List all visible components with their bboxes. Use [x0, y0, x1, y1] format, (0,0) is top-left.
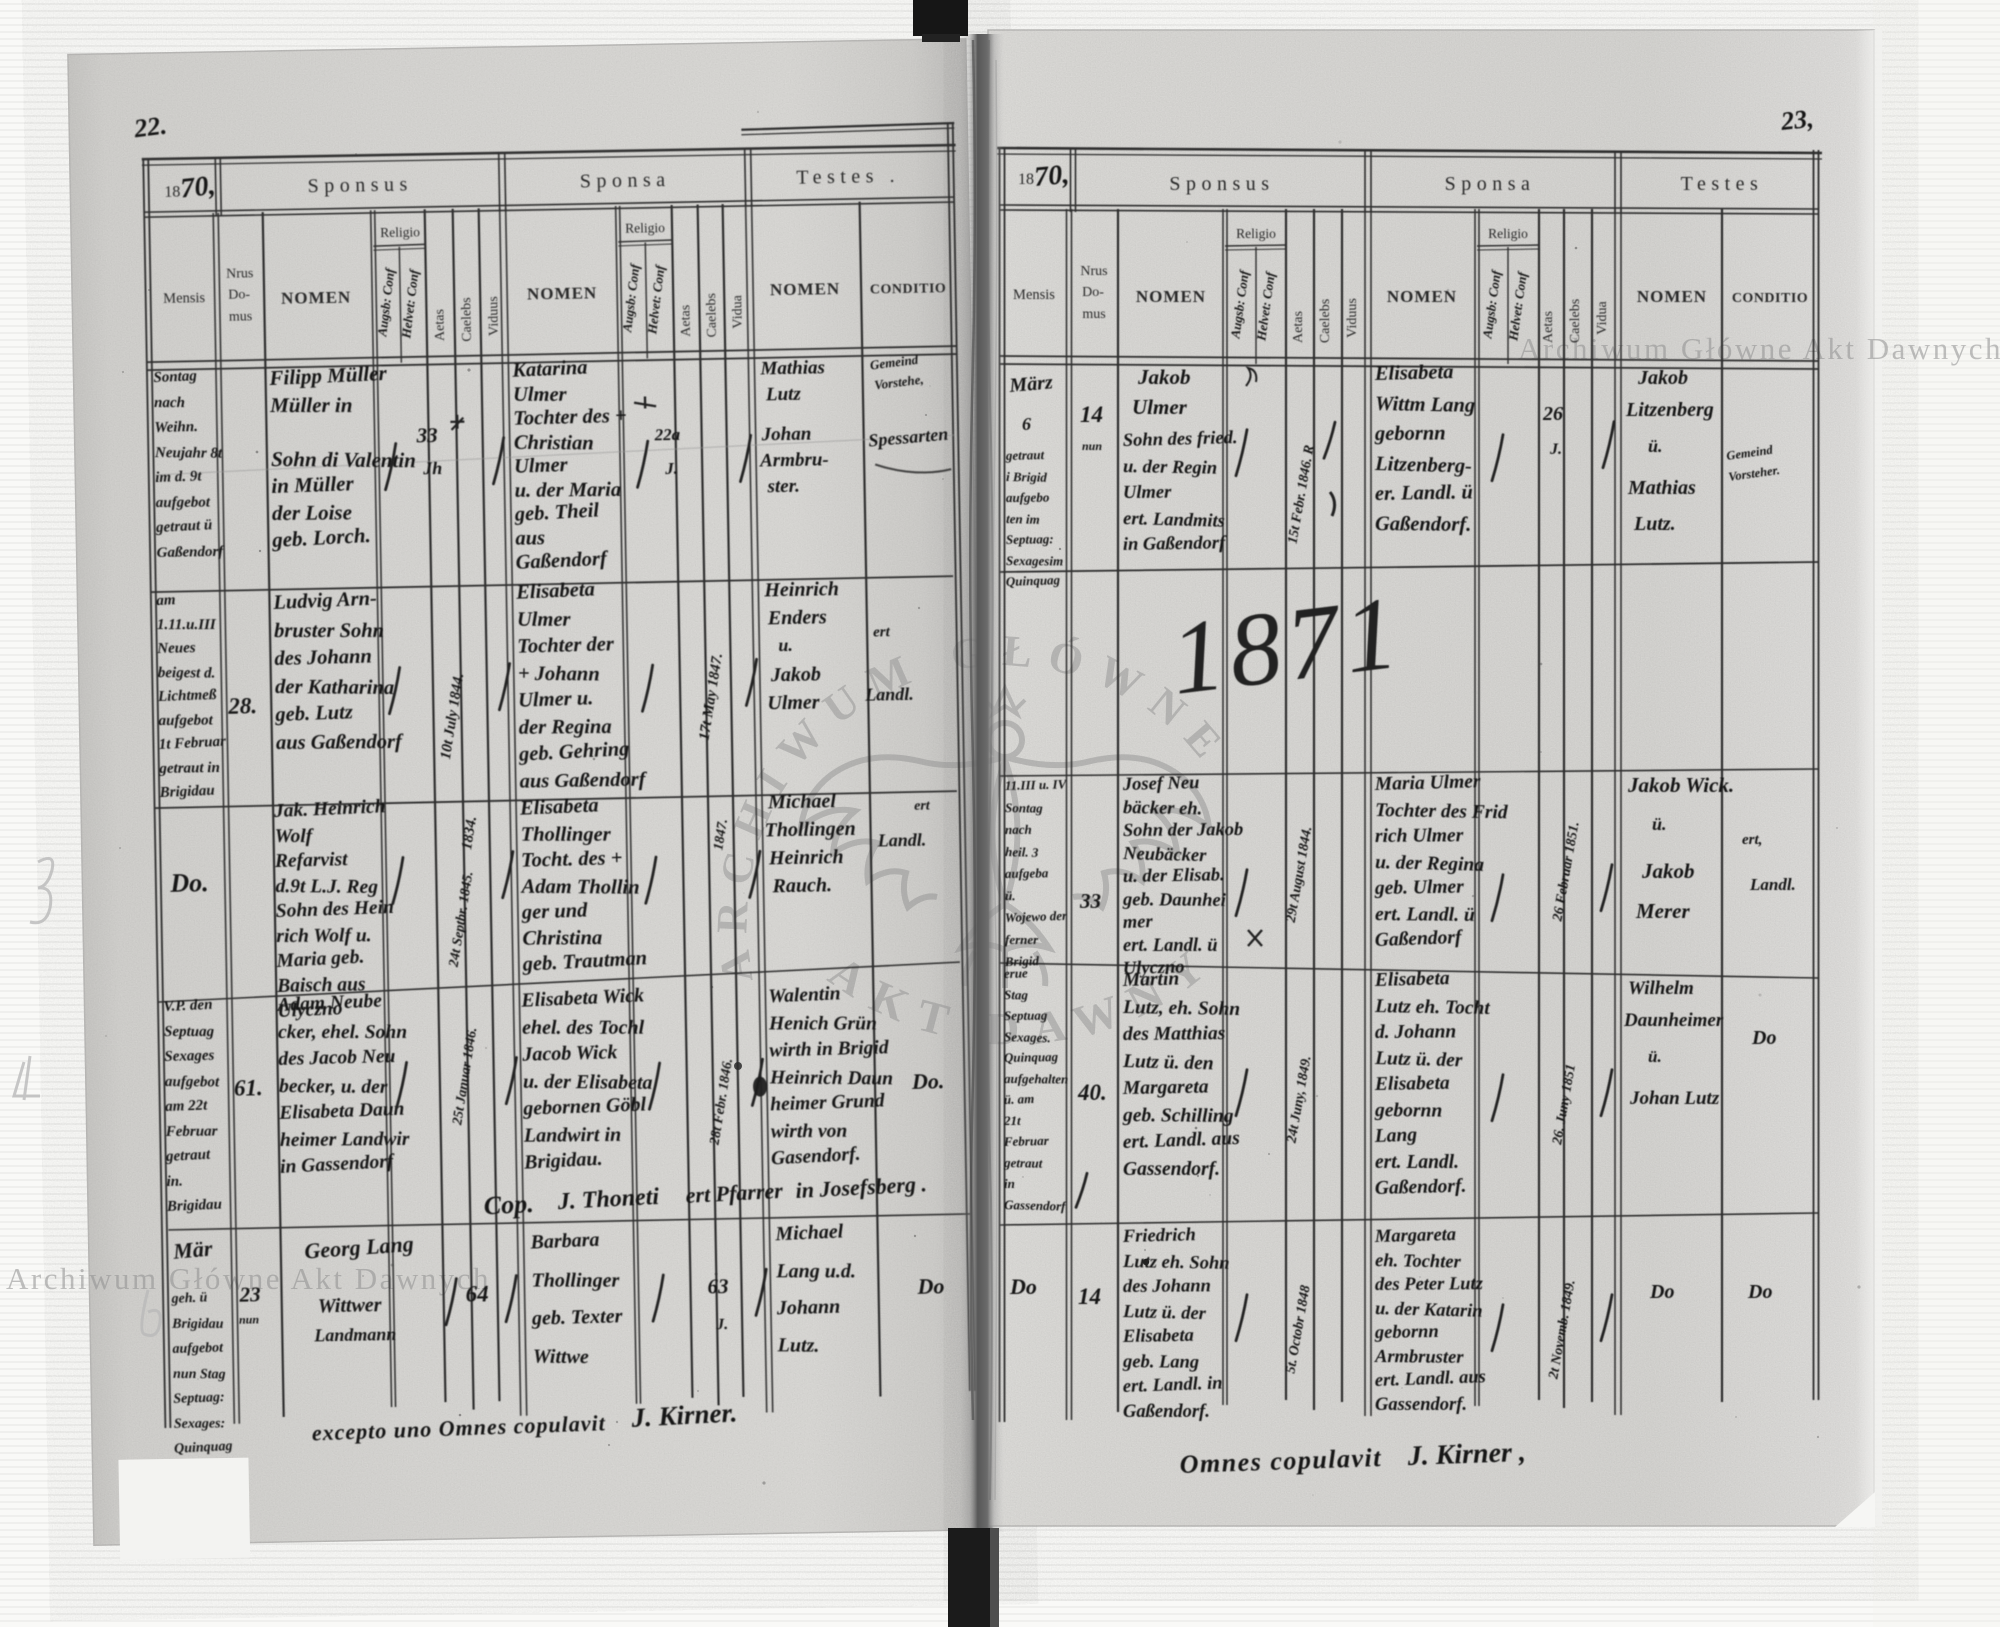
svg-text:Caelebs: Caelebs	[1318, 299, 1333, 343]
svg-text:22a: 22a	[653, 425, 680, 444]
svg-text:Weihn.: Weihn.	[154, 419, 198, 436]
svg-text:Michael: Michael	[774, 1220, 844, 1245]
svg-text:Lang: Lang	[1373, 1125, 1417, 1148]
svg-text:Mathias: Mathias	[759, 357, 825, 379]
svg-text:CONDITIO: CONDITIO	[1732, 291, 1808, 306]
svg-text:70,: 70,	[179, 170, 217, 204]
svg-text:Adam Thollin: Adam Thollin	[520, 876, 640, 899]
svg-text:Brigidau: Brigidau	[166, 1197, 223, 1215]
svg-text:d.9t L.J. Reg: d.9t L.J. Reg	[276, 876, 379, 898]
svg-text:Thollinger: Thollinger	[521, 824, 612, 846]
svg-text:NOMEN: NOMEN	[770, 279, 840, 299]
svg-text:Do: Do	[1009, 1274, 1037, 1299]
svg-text:heimer Grund: heimer Grund	[770, 1090, 885, 1115]
svg-text:des Johann: des Johann	[1123, 1276, 1211, 1297]
svg-text:Aetas: Aetas	[432, 309, 448, 341]
svg-text:des Peter Lutz: des Peter Lutz	[1375, 1274, 1484, 1295]
svg-text:Sexages: Sexages	[164, 1048, 215, 1065]
svg-text:6: 6	[1022, 414, 1031, 434]
svg-text:heil. 3: heil. 3	[1005, 844, 1039, 860]
svg-text:Viduus: Viduus	[1345, 298, 1360, 338]
svg-text:Ulmer u.: Ulmer u.	[518, 687, 594, 712]
svg-text:Daunheimer: Daunheimer	[1623, 1010, 1724, 1031]
svg-text:Ulmer: Ulmer	[517, 609, 572, 631]
svg-text:V.P. den: V.P. den	[163, 997, 213, 1015]
svg-text:Lutz ü. der: Lutz ü. der	[1374, 1048, 1463, 1071]
svg-text:ert. Landl. aus: ert. Landl. aus	[1374, 1367, 1486, 1391]
svg-text:ert. Landl. in: ert. Landl. in	[1122, 1374, 1222, 1397]
svg-text:im d. 9t: im d. 9t	[155, 468, 203, 486]
svg-text:Elisabeta: Elisabeta	[1374, 361, 1454, 385]
svg-text:Gassendorf: Gassendorf	[1004, 1197, 1067, 1214]
svg-text:wirth von: wirth von	[771, 1121, 848, 1143]
svg-text:wirth in Brigid: wirth in Brigid	[769, 1037, 889, 1061]
svg-text:getraut: getraut	[1005, 447, 1045, 463]
svg-text:heimer Landwir: heimer Landwir	[280, 1129, 410, 1151]
svg-text:64: 64	[465, 1281, 488, 1306]
svg-text:Landl.: Landl.	[877, 830, 927, 851]
svg-text:Gaßendorf.: Gaßendorf.	[1123, 1402, 1210, 1422]
svg-text:Tochter des +: Tochter des +	[513, 405, 627, 430]
svg-text:nach: nach	[1005, 822, 1032, 837]
svg-text:ster.: ster.	[766, 476, 800, 498]
svg-text:u. der Maria: u. der Maria	[515, 479, 622, 502]
svg-text:ert: ert	[873, 624, 891, 640]
svg-text:23: 23	[238, 1282, 260, 1306]
svg-text:Sexages.: Sexages.	[1004, 1029, 1051, 1045]
svg-text:Wojewo der: Wojewo der	[1005, 908, 1069, 925]
svg-text:Sontag: Sontag	[153, 368, 198, 386]
svg-text:Do: Do	[916, 1273, 944, 1298]
svg-text:ger und: ger und	[520, 899, 588, 923]
svg-text:der Regina: der Regina	[519, 716, 612, 739]
svg-text:der Katharina: der Katharina	[275, 676, 394, 699]
svg-text:Wittwe: Wittwe	[533, 1346, 589, 1368]
svg-text:Gassendorf.: Gassendorf.	[1123, 1159, 1220, 1180]
svg-text:Februar: Februar	[165, 1124, 218, 1140]
svg-text:der Loise: der Loise	[272, 500, 352, 525]
svg-text:aus Gaßendorf: aus Gaßendorf	[276, 731, 404, 754]
svg-text:nach: nach	[154, 395, 185, 411]
svg-text:NOMEN: NOMEN	[527, 283, 597, 303]
svg-text:Elisabeta: Elisabeta	[1122, 1326, 1194, 1347]
svg-text:Elisabeta Daun: Elisabeta Daun	[278, 1099, 405, 1124]
svg-text:Michael: Michael	[767, 790, 837, 813]
svg-text:Thollinger: Thollinger	[531, 1270, 619, 1292]
svg-text:Septuag:: Septuag:	[173, 1390, 225, 1407]
svg-text:Do: Do	[1751, 1027, 1776, 1049]
svg-text:26: 26	[1542, 403, 1563, 425]
svg-text:Wilhelm: Wilhelm	[1628, 978, 1694, 999]
svg-text:u. der Katarin: u. der Katarin	[1375, 1299, 1483, 1322]
svg-text:am 22t: am 22t	[165, 1097, 208, 1114]
svg-text:ert. Landl. ü: ert. Landl. ü	[1375, 904, 1475, 926]
svg-text:Viduus: Viduus	[486, 296, 502, 336]
svg-text:mus: mus	[229, 309, 253, 324]
svg-text:Elisabeta: Elisabeta	[515, 578, 595, 603]
svg-text:Brigidau.: Brigidau.	[523, 1148, 603, 1174]
svg-text:Katarina: Katarina	[511, 357, 588, 382]
svg-text:Septuag:: Septuag:	[1006, 531, 1054, 547]
svg-text:Religio: Religio	[1236, 226, 1276, 241]
svg-text:Nrus: Nrus	[226, 266, 253, 281]
svg-text:getraut: getraut	[1003, 1155, 1043, 1171]
svg-text:Lang u.d.: Lang u.d.	[775, 1260, 855, 1282]
svg-text:14: 14	[1078, 1284, 1101, 1309]
svg-text:Barbara: Barbara	[529, 1229, 600, 1254]
svg-text:Ulmer: Ulmer	[514, 454, 569, 478]
svg-text:ert. Landl. ü: ert. Landl. ü	[1123, 936, 1218, 956]
svg-text:aufgebot: aufgebot	[165, 1074, 220, 1090]
svg-text:Do-: Do-	[228, 287, 250, 302]
svg-text:14: 14	[1080, 402, 1103, 427]
svg-text:Ulmer: Ulmer	[513, 384, 568, 406]
svg-text:Neubäcker: Neubäcker	[1122, 844, 1208, 866]
svg-text:Tochter der: Tochter der	[517, 633, 615, 658]
svg-text:er. Landl. ü: er. Landl. ü	[1375, 481, 1473, 505]
svg-text:Lutz: Lutz	[765, 384, 802, 406]
svg-text:63: 63	[707, 1274, 728, 1298]
svg-text:Armbruster: Armbruster	[1374, 1347, 1464, 1368]
svg-text:ü. am: ü. am	[1004, 1091, 1035, 1107]
svg-text:in Müller: in Müller	[271, 471, 355, 498]
svg-text:61.: 61.	[234, 1075, 263, 1100]
svg-text:Mathias: Mathias	[1627, 477, 1696, 499]
svg-text:Religio: Religio	[1488, 226, 1528, 241]
svg-text:Tochter des Frid: Tochter des Frid	[1375, 800, 1508, 823]
svg-text:40.: 40.	[1077, 1080, 1107, 1105]
svg-text:Josef Neu: Josef Neu	[1122, 773, 1200, 795]
svg-text:Landl.: Landl.	[1749, 875, 1796, 894]
svg-text:Elisabeta: Elisabeta	[1374, 1073, 1450, 1095]
svg-text:Sponsa: Sponsa	[580, 169, 671, 193]
svg-text:des Johann: des Johann	[274, 645, 372, 670]
svg-text:Johann: Johann	[776, 1296, 841, 1320]
svg-text:u. der Regin: u. der Regin	[1123, 457, 1217, 479]
svg-text:Lichtmeß: Lichtmeß	[157, 687, 217, 705]
svg-text:Margareta: Margareta	[1374, 1225, 1457, 1247]
svg-text:Brigidau: Brigidau	[171, 1317, 224, 1332]
svg-text:Do: Do	[1747, 1281, 1772, 1303]
svg-text:Gaßendorf: Gaßendorf	[515, 548, 609, 574]
svg-text:Aetas: Aetas	[678, 305, 694, 337]
svg-text:Sexagesim: Sexagesim	[1006, 553, 1063, 568]
svg-text:Jakob: Jakob	[1641, 859, 1695, 883]
svg-text:NOMEN: NOMEN	[1136, 287, 1206, 306]
svg-text:Litzenberg-: Litzenberg-	[1374, 453, 1473, 478]
svg-text:u. der Elisabeta: u. der Elisabeta	[523, 1071, 653, 1094]
svg-text:ü.: ü.	[1005, 888, 1016, 903]
svg-text:Sohn des Hein: Sohn des Hein	[275, 897, 394, 922]
svg-text:beigest d.: beigest d.	[158, 665, 216, 682]
svg-text:nun Stag: nun Stag	[173, 1367, 226, 1382]
svg-text:+ Johann: + Johann	[518, 663, 600, 686]
svg-text:geb. Texter: geb. Texter	[531, 1305, 623, 1329]
svg-text:Septuag: Septuag	[1004, 1008, 1048, 1023]
svg-text:Maria Ulmer: Maria Ulmer	[1374, 771, 1482, 795]
svg-text:geb. Lang: geb. Lang	[1122, 1352, 1199, 1373]
svg-text:ert. Landmits: ert. Landmits	[1123, 509, 1225, 532]
svg-text:Mensis: Mensis	[163, 290, 206, 307]
svg-text:NOMEN: NOMEN	[1637, 287, 1707, 306]
svg-text:Lutz.: Lutz.	[777, 1334, 820, 1356]
svg-text:Quinquag: Quinquag	[1006, 572, 1061, 589]
svg-text:Elisabeta: Elisabeta	[519, 794, 599, 819]
svg-text:ten im: ten im	[1006, 511, 1040, 527]
svg-text:aufgebo: aufgebo	[1006, 490, 1050, 505]
svg-text:J. Kirner.: J. Kirner.	[630, 1397, 738, 1433]
svg-text:erue: erue	[1004, 965, 1028, 981]
svg-text:NOMEN: NOMEN	[1387, 287, 1457, 306]
svg-text:Gaßendorf.: Gaßendorf.	[1375, 513, 1471, 536]
svg-text:Do: Do	[1649, 1281, 1674, 1303]
svg-text:Quinquag: Quinquag	[174, 1439, 233, 1457]
svg-text:aufgebot: aufgebot	[156, 495, 211, 511]
svg-text:22.: 22.	[132, 111, 169, 144]
svg-text:aufgebot: aufgebot	[159, 713, 214, 729]
svg-text:Mär: Mär	[171, 1235, 214, 1263]
svg-text:Caelebs: Caelebs	[1568, 299, 1583, 343]
svg-text:1.11.u.III: 1.11.u.III	[157, 617, 217, 633]
svg-text:Martin: Martin	[1122, 969, 1180, 991]
svg-text:Nrus: Nrus	[1080, 264, 1107, 279]
svg-text:geb. Schilling: geb. Schilling	[1122, 1105, 1234, 1127]
svg-text:J.: J.	[1549, 441, 1562, 458]
svg-text:Walentin: Walentin	[768, 983, 841, 1007]
svg-text:gebornen Göbl: gebornen Göbl	[522, 1093, 647, 1119]
svg-text:33: 33	[415, 423, 437, 447]
svg-text:21t: 21t	[1003, 1113, 1021, 1128]
svg-text:Jakob: Jakob	[1137, 365, 1191, 389]
svg-text:nun: nun	[239, 1312, 260, 1326]
svg-text:Aetas: Aetas	[1541, 311, 1556, 343]
svg-text:geb. Theil: geb. Theil	[513, 499, 600, 525]
svg-text:Do-: Do-	[1082, 285, 1104, 300]
svg-text:Lutz ü. den: Lutz ü. den	[1122, 1051, 1214, 1074]
svg-text:Rauch.: Rauch.	[771, 874, 832, 897]
svg-text:Sponsa: Sponsa	[1445, 173, 1536, 195]
svg-text:Mensis: Mensis	[1013, 287, 1055, 303]
svg-text:getraut ü: getraut ü	[155, 517, 213, 536]
svg-text:Margareta: Margareta	[1122, 1077, 1209, 1100]
svg-text:Caelebs: Caelebs	[704, 293, 720, 338]
svg-text:Sexages:: Sexages:	[174, 1416, 225, 1431]
svg-text:aufgeba: aufgeba	[1005, 865, 1049, 881]
svg-text:geb. Lutz: geb. Lutz	[274, 701, 353, 726]
svg-text:Neues: Neues	[156, 640, 196, 657]
svg-text:aus Gaßendorf: aus Gaßendorf	[519, 768, 647, 792]
svg-text:geb. Ulmer: geb. Ulmer	[1374, 876, 1465, 899]
svg-text:Testes: Testes	[1681, 173, 1764, 195]
svg-text:aus: aus	[515, 527, 545, 550]
svg-text:Sponsus: Sponsus	[1169, 173, 1274, 195]
svg-text:Caelebs: Caelebs	[459, 297, 475, 342]
svg-text:Merer: Merer	[1635, 899, 1690, 923]
svg-text:cker, ehel. Sohn: cker, ehel. Sohn	[278, 1022, 407, 1043]
svg-text:Litzenberg: Litzenberg	[1625, 399, 1714, 421]
svg-text:Gaßendorf: Gaßendorf	[1374, 927, 1464, 951]
svg-text:J.: J.	[715, 1316, 728, 1333]
svg-text:Wittm Lang: Wittm Lang	[1375, 393, 1475, 417]
svg-text:Heinrich: Heinrich	[763, 578, 839, 601]
svg-text:Ludvig Arn-: Ludvig Arn-	[272, 587, 377, 614]
svg-text:J.: J.	[664, 459, 678, 478]
svg-text:Tocht. des +: Tocht. des +	[521, 847, 623, 872]
svg-text:Cop.: Cop.	[483, 1189, 534, 1221]
svg-text:bäcker eh.: bäcker eh.	[1123, 798, 1202, 819]
svg-text:Sponsus: Sponsus	[307, 174, 413, 198]
svg-text:mus: mus	[1082, 307, 1105, 322]
svg-text:ü.: ü.	[1648, 436, 1663, 456]
svg-text:Jakob: Jakob	[770, 663, 821, 686]
svg-text:becker, u. der: becker, u. der	[279, 1076, 388, 1098]
svg-text:Gaßendorf.: Gaßendorf.	[1375, 1176, 1467, 1199]
svg-text:Religio: Religio	[380, 224, 420, 240]
svg-text:Landmann: Landmann	[313, 1324, 396, 1345]
svg-text:aufgebot: aufgebot	[172, 1341, 224, 1357]
svg-text:gebornn: gebornn	[1374, 1322, 1439, 1343]
svg-text:Gassendorf.: Gassendorf.	[1375, 1395, 1467, 1415]
svg-text:geh. ü: geh. ü	[170, 1290, 208, 1307]
svg-text:Ulmer: Ulmer	[767, 691, 820, 714]
svg-text:Vidua: Vidua	[730, 294, 746, 328]
svg-text:Lutz.: Lutz.	[1633, 513, 1676, 535]
svg-text:mer: mer	[1122, 912, 1153, 933]
svg-text:u.: u.	[778, 635, 793, 655]
svg-text:Septuag: Septuag	[164, 1024, 215, 1040]
svg-text:23,: 23,	[1779, 104, 1815, 136]
svg-text:Gaßendorf: Gaßendorf	[156, 544, 225, 561]
svg-text:Enders: Enders	[767, 606, 827, 629]
svg-text:rich Ulmer: rich Ulmer	[1375, 825, 1464, 847]
svg-text:J. Thoneti: J. Thoneti	[556, 1184, 660, 1215]
svg-text:Jakob: Jakob	[1637, 367, 1688, 389]
svg-text:33: 33	[1079, 889, 1101, 913]
svg-text:ehel. des Tochl: ehel. des Tochl	[522, 1017, 644, 1039]
svg-text:Quinquag: Quinquag	[1004, 1049, 1059, 1065]
svg-text:11.III u. IV: 11.III u. IV	[1005, 776, 1068, 793]
svg-text:Lutz eh. Sohn: Lutz eh. Sohn	[1122, 1252, 1230, 1274]
svg-text:gebornn: gebornn	[1374, 1100, 1442, 1122]
svg-text:am: am	[156, 592, 176, 609]
svg-text:Jakob Wick.: Jakob Wick.	[1627, 773, 1734, 797]
svg-text:d. Johann: d. Johann	[1375, 1021, 1456, 1043]
svg-text:Wittwer: Wittwer	[318, 1294, 382, 1317]
svg-text:Landwirt in: Landwirt in	[523, 1124, 621, 1147]
svg-text:Friedrich: Friedrich	[1122, 1225, 1196, 1247]
svg-text:Sontag: Sontag	[1005, 800, 1043, 816]
svg-text:u. der Elisab.: u. der Elisab.	[1123, 865, 1225, 887]
svg-text:getraut: getraut	[165, 1147, 212, 1165]
svg-text:ü.: ü.	[1652, 814, 1667, 834]
svg-text:CONDITIO: CONDITIO	[870, 281, 947, 297]
svg-text:Lutz eh. Tocht: Lutz eh. Tocht	[1374, 996, 1491, 1019]
svg-text:in: in	[1004, 1176, 1015, 1191]
svg-text:ü.: ü.	[1648, 1047, 1662, 1066]
svg-text:Stag: Stag	[1004, 987, 1029, 1002]
svg-text:nun: nun	[1082, 439, 1102, 453]
svg-text:rich Wolf u.: rich Wolf u.	[276, 925, 371, 947]
svg-text:des Jacob Neu: des Jacob Neu	[278, 1046, 396, 1070]
svg-text:Henich Grün: Henich Grün	[768, 1013, 877, 1034]
svg-text:ert. Landl.: ert. Landl.	[1375, 1152, 1459, 1173]
svg-text:Thollingen: Thollingen	[764, 818, 856, 842]
svg-text:Jh: Jh	[422, 458, 442, 478]
svg-text:März: März	[1008, 371, 1054, 397]
svg-text:geb. Daunhei: geb. Daunhei	[1122, 890, 1227, 911]
svg-text:Do.: Do.	[169, 868, 209, 898]
svg-text:Armbru-: Armbru-	[759, 449, 829, 471]
svg-text:18: 18	[1018, 171, 1034, 188]
svg-text:Christina: Christina	[522, 927, 602, 950]
svg-text:Ulmer: Ulmer	[1132, 395, 1188, 419]
svg-text:J. Kirner ,: J. Kirner ,	[1406, 1437, 1526, 1472]
svg-text:28.: 28.	[227, 693, 257, 719]
svg-text:Februar: Februar	[1003, 1133, 1050, 1149]
svg-text:Sohn des fried.: Sohn des fried.	[1123, 428, 1238, 451]
svg-text:Lutz ü. der: Lutz ü. der	[1122, 1302, 1207, 1324]
svg-text:Landl.: Landl.	[864, 684, 914, 705]
svg-text:des Matthias: des Matthias	[1123, 1023, 1226, 1045]
svg-text:ferner: ferner	[1005, 932, 1039, 947]
svg-text:Johan: Johan	[760, 424, 811, 446]
svg-text:gebornn: gebornn	[1374, 422, 1446, 445]
svg-text:Religio: Religio	[625, 220, 665, 236]
svg-text:Sohn der Jakob: Sohn der Jakob	[1123, 820, 1243, 841]
svg-text:getraut in: getraut in	[158, 760, 220, 777]
svg-text:i Brigid: i Brigid	[1006, 469, 1048, 485]
svg-text:Testes .: Testes .	[796, 165, 900, 189]
svg-text:Müller in: Müller in	[269, 393, 352, 417]
svg-text:Wolf: Wolf	[275, 826, 315, 847]
svg-text:70,: 70,	[1033, 159, 1071, 193]
svg-text:bruster Sohn: bruster Sohn	[274, 620, 384, 642]
svg-text:Lutz, eh. Sohn: Lutz, eh. Sohn	[1122, 997, 1240, 1020]
svg-text:Ulmer: Ulmer	[1123, 483, 1172, 503]
svg-text:ert: ert	[914, 799, 931, 814]
svg-text:Refarvist: Refarvist	[274, 849, 349, 872]
svg-text:Vidua: Vidua	[1595, 301, 1610, 335]
svg-text:Brigidau: Brigidau	[158, 783, 215, 801]
svg-text:Heinrich: Heinrich	[768, 846, 844, 869]
svg-text:Jacob Wick: Jacob Wick	[521, 1041, 618, 1066]
svg-text:Heinrich Daun: Heinrich Daun	[769, 1067, 893, 1089]
svg-text:in Gaßendorf: in Gaßendorf	[1123, 533, 1227, 555]
svg-text:Aetas: Aetas	[1291, 311, 1306, 343]
svg-text:Christian: Christian	[514, 432, 594, 455]
svg-text:Neujahr 8t: Neujahr 8t	[154, 445, 223, 462]
svg-text:eh. Tochter: eh. Tochter	[1375, 1251, 1462, 1273]
svg-text:in.: in.	[166, 1174, 183, 1190]
svg-text:Do.: Do.	[911, 1068, 945, 1094]
svg-text:u. der Regina: u. der Regina	[1375, 852, 1485, 876]
svg-text:aufgehalten: aufgehalten	[1004, 1071, 1068, 1087]
svg-text:ert. Landl. aus: ert. Landl. aus	[1122, 1128, 1240, 1153]
svg-text:ert Pfarrer: ert Pfarrer	[685, 1178, 784, 1208]
svg-text:18: 18	[164, 184, 180, 201]
svg-text:Johan Lutz: Johan Lutz	[1629, 1088, 1720, 1109]
svg-text:Elisabeta: Elisabeta	[1374, 968, 1451, 991]
svg-text:NOMEN: NOMEN	[281, 288, 351, 308]
svg-text:ert,: ert,	[1742, 832, 1762, 848]
